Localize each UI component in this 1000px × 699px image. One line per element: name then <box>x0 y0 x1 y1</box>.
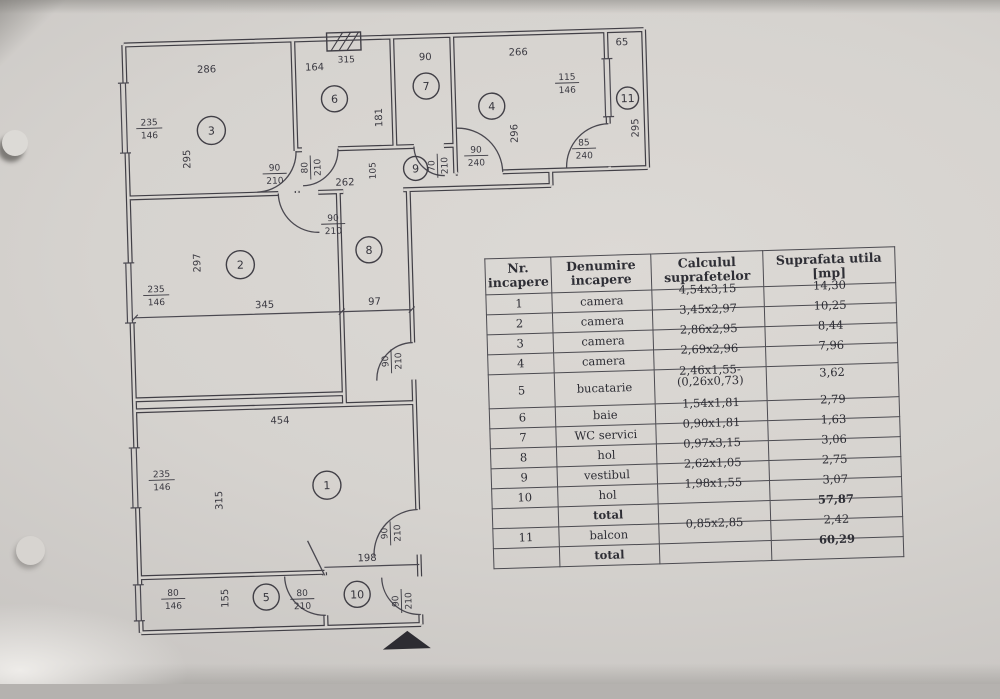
svg-text:210: 210 <box>294 602 312 613</box>
svg-text:6: 6 <box>331 93 338 106</box>
window-room5 <box>133 585 145 621</box>
entrance-arrow-icon <box>382 630 431 649</box>
dim-label: 286 <box>197 64 216 76</box>
svg-text:90: 90 <box>380 527 390 539</box>
dim-label: 266 <box>508 47 527 59</box>
svg-text:210: 210 <box>313 158 324 176</box>
svg-text:10: 10 <box>350 588 364 601</box>
window-size-label: 235146 <box>143 285 170 309</box>
door-size-label: 90210 <box>321 214 346 238</box>
door-size-label: 90210 <box>381 349 405 374</box>
svg-text:2: 2 <box>237 259 244 272</box>
svg-text:85: 85 <box>578 138 590 148</box>
svg-text:146: 146 <box>148 298 166 309</box>
svg-text:146: 146 <box>153 483 171 494</box>
room-number-2: 2 <box>226 250 255 279</box>
window-room3 <box>118 83 131 153</box>
vent-label: 315 <box>338 55 355 66</box>
svg-text:235: 235 <box>140 118 157 129</box>
room-number-3: 3 <box>197 116 226 145</box>
svg-text:210: 210 <box>325 227 343 238</box>
svg-text:240: 240 <box>468 158 486 169</box>
door-size-label: 80210 <box>300 155 324 180</box>
dim-label: 454 <box>270 415 289 427</box>
dim-label: 97 <box>368 297 381 308</box>
room-number-11: 11 <box>616 87 639 110</box>
svg-text:210: 210 <box>393 524 404 542</box>
dim-label: 315 <box>214 491 226 510</box>
window-room1 <box>129 448 142 508</box>
svg-text:80: 80 <box>300 162 310 174</box>
dim-label: 181 <box>374 108 386 127</box>
svg-text:90: 90 <box>327 214 339 224</box>
col-header-nr: Nr. incapere <box>485 257 552 295</box>
svg-text:146: 146 <box>141 131 159 142</box>
door-size-label: 70210 <box>427 153 451 178</box>
svg-text:90: 90 <box>269 163 281 173</box>
svg-text:3: 3 <box>208 124 215 137</box>
dim-label: 90 <box>419 52 432 63</box>
svg-text:1: 1 <box>323 479 330 492</box>
door-size-label: 90210 <box>380 521 404 546</box>
svg-text:7: 7 <box>422 80 429 93</box>
room-areas-table: Nr. incapere Denumire incapere Calculul … <box>484 246 904 569</box>
svg-text:9: 9 <box>412 162 419 175</box>
window-size-label: 80146 <box>161 588 186 612</box>
dim-label: 105 <box>368 162 379 179</box>
window-room4-balcony <box>601 59 614 117</box>
dim-label: 262 <box>335 177 354 189</box>
svg-text:146: 146 <box>559 86 577 97</box>
dim-label: 345 <box>255 300 274 312</box>
svg-text:210: 210 <box>440 157 451 175</box>
dim-label: 295 <box>182 149 194 168</box>
svg-text:90: 90 <box>381 355 391 367</box>
window-size-label: 235146 <box>136 118 163 142</box>
col-header-denumire: Denumire incapere <box>551 254 652 293</box>
svg-text:235: 235 <box>153 470 170 481</box>
opening-line-room10 <box>324 564 419 567</box>
window-size-label: 235146 <box>148 470 175 494</box>
svg-text:70: 70 <box>427 160 437 172</box>
svg-text:210: 210 <box>404 592 415 610</box>
svg-text:240: 240 <box>576 151 594 162</box>
svg-text:115: 115 <box>558 73 575 84</box>
svg-text:11: 11 <box>620 92 634 105</box>
dim-label: 155 <box>220 589 232 608</box>
room-number-10: 10 <box>344 581 371 608</box>
door-size-label: 90210 <box>262 163 287 187</box>
room-number-1: 1 <box>313 471 342 500</box>
door-arc-room2 <box>278 192 319 233</box>
svg-text:90: 90 <box>470 145 482 155</box>
svg-text:146: 146 <box>165 602 183 613</box>
svg-text:90: 90 <box>391 595 401 607</box>
svg-text:5: 5 <box>263 591 270 604</box>
dim-label: 295 <box>630 118 642 137</box>
dim-label: 297 <box>192 253 204 272</box>
dim-label: 198 <box>357 553 376 565</box>
svg-text:4: 4 <box>488 100 495 113</box>
dim-label: 296 <box>509 124 521 143</box>
room-number-6: 6 <box>321 85 348 112</box>
vent-shaft-hatch <box>327 32 362 51</box>
window-size-label: 115146 <box>555 73 580 97</box>
svg-text:80: 80 <box>167 589 179 599</box>
door-size-label: 90240 <box>464 145 489 169</box>
room-number-4: 4 <box>478 93 505 120</box>
svg-text:8: 8 <box>365 244 372 257</box>
svg-text:210: 210 <box>266 176 284 187</box>
svg-text:235: 235 <box>147 285 164 296</box>
room-number-5: 5 <box>253 584 280 611</box>
svg-text:80: 80 <box>296 589 308 599</box>
dim-label: 164 <box>305 62 324 74</box>
scanned-paper-background: 3 6 7 4 11 9 2 8 1 <box>0 0 1000 684</box>
door-size-label: 90210 <box>391 589 415 614</box>
svg-text:210: 210 <box>394 352 405 370</box>
room-number-8: 8 <box>356 236 383 263</box>
window-room2 <box>123 263 136 323</box>
dim-label: 65 <box>615 37 628 48</box>
scan-content: 3 6 7 4 11 9 2 8 1 <box>0 0 1000 699</box>
room-number-7: 7 <box>413 73 440 100</box>
door-size-label: 85240 <box>572 138 597 162</box>
